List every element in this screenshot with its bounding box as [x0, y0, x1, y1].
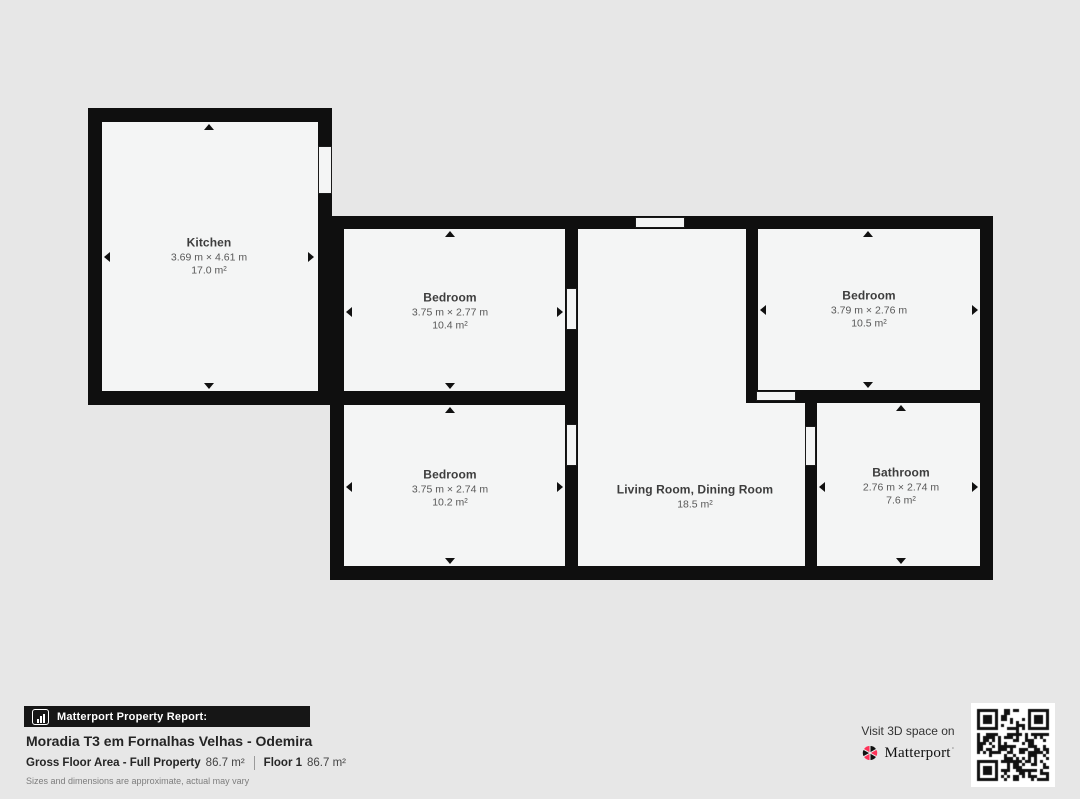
- building-icon: [32, 709, 49, 725]
- room-label-bedroom-top: Bedroom 3.75 m × 2.77 m 10.4 m²: [412, 291, 488, 332]
- room-area: 10.5 m²: [831, 318, 907, 330]
- dim-arrow-up-icon: [445, 231, 455, 237]
- room-area: 10.4 m²: [412, 320, 488, 332]
- room-label-bedroom-bottom: Bedroom 3.75 m × 2.74 m 10.2 m²: [412, 468, 488, 509]
- floor-value: 86.7 m²: [307, 757, 346, 769]
- dim-arrow-left-icon: [346, 307, 352, 317]
- room-name: Bedroom: [412, 468, 488, 482]
- dim-arrow-down-icon: [863, 382, 873, 388]
- dim-arrow-left-icon: [760, 305, 766, 315]
- room-area: 7.6 m²: [863, 495, 939, 507]
- room-name: Bedroom: [412, 291, 488, 305]
- floor-label: Floor 1: [264, 757, 302, 769]
- qr-code: [971, 703, 1055, 787]
- room-dimensions: 2.76 m × 2.74 m: [863, 481, 939, 493]
- dim-arrow-down-icon: [445, 558, 455, 564]
- visit-3d-promo: Visit 3D space on Matterport·: [850, 724, 966, 762]
- room-dimensions: 3.75 m × 2.77 m: [412, 306, 488, 318]
- room-label-bathroom: Bathroom 2.76 m × 2.74 m 7.6 m²: [863, 466, 939, 507]
- disclaimer-text: Sizes and dimensions are approximate, ac…: [26, 776, 249, 786]
- matterport-wordmark: Matterport·: [884, 744, 954, 762]
- window: [318, 146, 332, 194]
- room-area: 10.2 m²: [412, 497, 488, 509]
- dim-arrow-right-icon: [557, 307, 563, 317]
- dim-arrow-down-icon: [204, 383, 214, 389]
- room-label-bedroom-right: Bedroom 3.79 m × 2.76 m 10.5 m²: [831, 289, 907, 330]
- window: [635, 217, 685, 228]
- dim-arrow-right-icon: [308, 252, 314, 262]
- report-header-bar: Matterport Property Report:: [24, 706, 310, 727]
- dim-arrow-up-icon: [863, 231, 873, 237]
- room-name: Bathroom: [863, 466, 939, 480]
- dim-arrow-right-icon: [557, 482, 563, 492]
- door-opening: [566, 288, 577, 330]
- room-dimensions: 3.79 m × 2.76 m: [831, 304, 907, 316]
- door-opening: [805, 426, 816, 466]
- property-title: Moradia T3 em Fornalhas Velhas - Odemira: [26, 733, 312, 749]
- door-opening: [756, 391, 796, 401]
- room-dimensions: 3.75 m × 2.74 m: [412, 483, 488, 495]
- dim-arrow-up-icon: [445, 407, 455, 413]
- dim-arrow-up-icon: [896, 405, 906, 411]
- stats-divider: [254, 756, 255, 770]
- qr-code-pattern: [971, 703, 1055, 787]
- area-stats: Gross Floor Area - Full Property 86.7 m²…: [26, 756, 346, 770]
- dim-arrow-right-icon: [972, 482, 978, 492]
- dim-arrow-down-icon: [445, 383, 455, 389]
- door-opening: [566, 424, 577, 466]
- property-report-page: Kitchen 3.69 m × 4.61 m 17.0 m² Bedroom …: [0, 0, 1080, 799]
- dim-arrow-up-icon: [204, 124, 214, 130]
- dim-arrow-left-icon: [346, 482, 352, 492]
- trademark-dot: ·: [952, 744, 955, 753]
- dim-arrow-right-icon: [972, 305, 978, 315]
- room-dimensions: 3.69 m × 4.61 m: [171, 251, 247, 263]
- dim-arrow-left-icon: [819, 482, 825, 492]
- visit-3d-text: Visit 3D space on: [861, 724, 954, 738]
- matterport-pinwheel-icon: [861, 744, 879, 762]
- dim-arrow-down-icon: [896, 558, 906, 564]
- gross-floor-area-label: Gross Floor Area - Full Property: [26, 757, 201, 769]
- room-area: 17.0 m²: [171, 265, 247, 277]
- room-name: Bedroom: [831, 289, 907, 303]
- room-label-kitchen: Kitchen 3.69 m × 4.61 m 17.0 m²: [171, 236, 247, 277]
- room-name: Living Room, Dining Room: [617, 482, 773, 496]
- report-bar-label: Matterport Property Report:: [57, 711, 207, 723]
- matterport-logo: Matterport·: [861, 744, 954, 762]
- room-area: 18.5 m²: [617, 498, 773, 510]
- dim-arrow-left-icon: [104, 252, 110, 262]
- room-name: Kitchen: [171, 236, 247, 250]
- room-label-living: Living Room, Dining Room 18.5 m²: [617, 482, 773, 510]
- gross-floor-area-value: 86.7 m²: [206, 757, 245, 769]
